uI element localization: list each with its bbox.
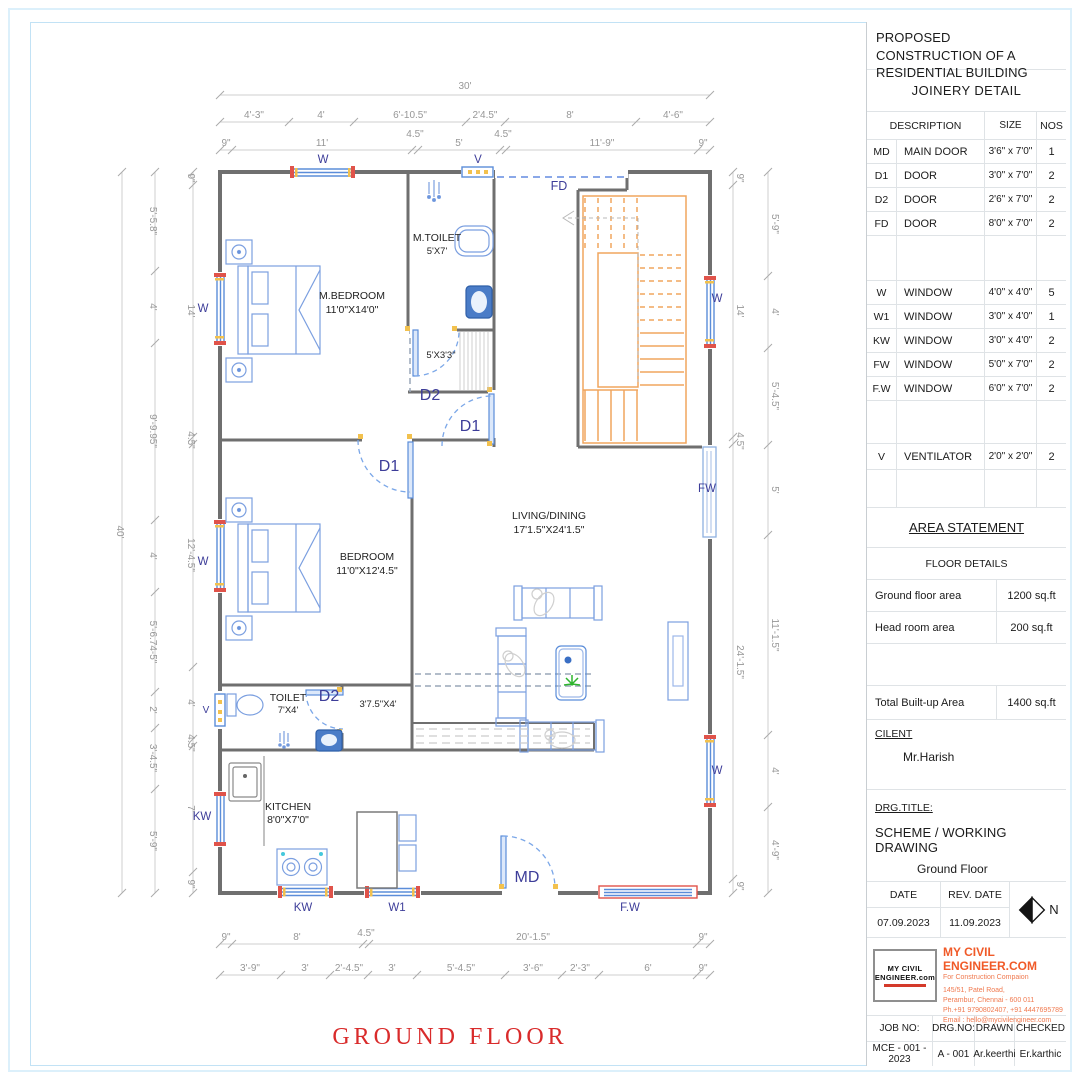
area-spacer [867,644,1066,686]
master-bed [226,240,320,382]
company-info: MY CIVIL ENGINEER.COM For Construction C… [943,938,1066,1027]
door-tag: FD [551,179,568,193]
joinery-cell-size: 2'0" x 2'0" [985,444,1037,469]
dim-label: 8' [566,110,574,121]
area-label: Ground floor area [867,580,997,611]
area-value: 1200 sq.ft [997,590,1066,602]
joinery-cell-size: 3'6" x 7'0" [985,140,1037,163]
job-no-value: MCE - 001 - 2023 [867,1042,933,1066]
window-tag: FW [698,483,716,495]
joinery-cell-tag: MD [867,140,897,163]
drawing-title-section: DRG.TITLE: SCHEME / WORKING DRAWING Grou… [867,790,1066,882]
dim-label: 9" [698,138,708,149]
dim-label: 5'-6.74-5" [147,621,158,664]
window-tag: W [318,154,329,166]
dim-label: 9" [221,932,231,943]
joinery-cell-tag: W [867,281,897,304]
window-tag: W [198,556,209,568]
dim-label: 8' [293,932,301,943]
joinery-cell-nos: 2 [1037,444,1066,469]
logo-text: MY CIVIL [888,964,923,973]
joinery-cell-nos: 2 [1037,353,1066,376]
dim-label: 6' [644,963,652,974]
joinery-cell-desc: WINDOW [897,377,985,400]
dim-label: 3' [301,963,309,974]
date-section: DATE REV. DATE 07.09.2023 11.09.2023 N [867,882,1066,938]
joinery-cell-tag: D1 [867,164,897,187]
dim-label: 5'-5.8" [147,207,158,236]
joinery-cell-tag: FW [867,353,897,376]
date-header: DATE [867,882,941,908]
address-line: Ph.+91 9790802407, +91 4447695789 [943,1006,1066,1016]
drg-subtitle: Ground Floor [917,862,1058,876]
joinery-cell-desc: MAIN DOOR [897,140,985,163]
date-value: 07.09.2023 [867,908,941,938]
walls [220,172,710,893]
joinery-cell-tag: FD [867,212,897,235]
dim-label: 30' [458,81,471,92]
door-hinge-marks [337,326,558,889]
dim-label: 4.5" [357,928,375,939]
dim-label: 4' [147,552,158,560]
drawn-value: Ar.keerthi [975,1042,1015,1066]
joinery-cell-nos: 2 [1037,188,1066,211]
tv-console [668,622,688,700]
company-logo: MY CIVIL ENGINEER.com [873,949,937,1002]
dim-label: 9" [185,879,196,889]
joinery-cell-desc: WINDOW [897,305,985,328]
room-label: LIVING/DINING [512,510,586,522]
joinery-header-row: DESCRIPTION SIZE NOS [867,112,1066,140]
dim-label: 9" [734,881,745,891]
drg-title: SCHEME / WORKING DRAWING [875,825,1058,855]
dim-label: 4.5" [185,431,196,449]
dim-label: 4'-9" [769,840,780,860]
dim-label: 4' [147,303,158,311]
client-label: CILENT [875,728,912,740]
area-row: Head room area 200 sq.ft [867,612,1066,644]
joinery-cell-tag: V [867,444,897,469]
window-jambs [214,166,716,898]
joinery-row: FW WINDOW 5'0" x 7'0" 2 [867,353,1066,377]
sofa-set [496,586,604,752]
window-tag: KW [294,902,313,914]
dim-label: 14' [734,304,745,317]
joinery-row: MD MAIN DOOR 3'6" x 7'0" 1 [867,140,1066,164]
room-size: 3'7.5"X4' [359,699,396,710]
dim-label: 4.5" [494,129,512,140]
drg-title-label: DRG.TITLE: [875,802,933,814]
dim-label: 3'-4.5" [147,744,158,773]
dim-label: 9" [185,173,196,183]
room-size: 5'X7' [427,246,448,257]
window-tag: KW [193,811,212,823]
joinery-cell-size: 5'0" x 7'0" [985,353,1037,376]
floor-details-heading: FLOOR DETAILS [867,548,1066,580]
joinery-col-size: SIZE [985,112,1037,139]
dim-label: 40' [114,525,125,538]
dim-label: 9" [698,932,708,943]
joinery-cell-desc: WINDOW [897,281,985,304]
room-label: M.BEDROOM [319,290,385,302]
dim-label: 4.5" [734,432,745,450]
window-tag: F.W [620,902,640,914]
area-total-value: 1400 sq.ft [997,697,1066,709]
north-indicator: N [1009,882,1066,937]
window-tag: V [474,154,482,166]
area-row: Ground floor area 1200 sq.ft [867,580,1066,612]
dim-label: 11'-1.5" [769,618,780,652]
room-size: 11'0"X14'0" [326,304,379,316]
joinery-cell-desc: WINDOW [897,329,985,352]
joinery-cell-nos: 1 [1037,305,1066,328]
job-no-header: JOB NO: [867,1016,933,1041]
joinery-cell-desc: DOOR [897,188,985,211]
dim-label: 2' [147,706,158,714]
dim-label: 20'-1.5" [516,932,550,943]
wardrobe-hatch [460,332,488,390]
windows [214,166,716,898]
dim-label: 4' [769,308,780,316]
stairs [583,196,686,443]
joinery-spacer [867,236,1066,281]
joinery-col-description: DESCRIPTION [867,112,985,139]
room-size: 8'0"X7'0" [267,814,309,826]
client-name: Mr.Harish [903,750,1058,764]
dim-label: 4'-3" [244,110,264,121]
dim-label: 11'-9" [590,138,615,149]
joinery-cell-desc: DOOR [897,212,985,235]
company-address: 145/51, Patel Road, Perambur, Chennai - … [943,986,1066,1027]
dim-label: 24'-1.5" [734,645,745,679]
joinery-row: W WINDOW 4'0" x 4'0" 5 [867,281,1066,305]
dim-label: 4' [317,110,325,121]
understair-hatch [416,729,590,743]
dim-label: 6'-10.5" [393,110,427,121]
room-size: 17'1.5"X24'1.5" [513,524,584,536]
area-statement-heading: AREA STATEMENT [867,508,1066,548]
company-tagline: For Construction Compaion [943,974,1066,981]
joinery-cell-nos: 2 [1037,164,1066,187]
joinery-row: KW WINDOW 3'0" x 4'0" 2 [867,329,1066,353]
joinery-cell-size: 3'0" x 4'0" [985,329,1037,352]
room-label: M.TOILET [413,232,462,244]
joinery-spacer [867,470,1066,508]
company-name: MY CIVIL ENGINEER.COM [943,945,1066,973]
dim-label: 4' [769,767,780,775]
window-tag: W [712,293,723,305]
dim-label: 2'-4.5" [335,963,364,974]
joinery-cell-tag: W1 [867,305,897,328]
door-tag: D2 [319,688,340,705]
dim-label: 4' [185,699,196,707]
joinery-cell-tag: KW [867,329,897,352]
door-tag: D2 [420,387,441,404]
logo-underline [884,984,926,987]
room-label: BEDROOM [340,551,394,563]
room-size: 5'X3'3" [426,350,455,361]
window-tag: W [712,765,723,777]
joinery-row: D2 DOOR 2'6" x 7'0" 2 [867,188,1066,212]
date-table: DATE REV. DATE 07.09.2023 11.09.2023 [867,882,1009,937]
title-block: PROPOSED CONSTRUCTION OF A RESIDENTIAL B… [866,22,1066,1066]
joinery-cell-tag: F.W [867,377,897,400]
joinery-cell-desc: DOOR [897,164,985,187]
joinery-cell-size: 3'0" x 4'0" [985,305,1037,328]
area-value: 200 sq.ft [997,622,1066,634]
stair-direction-guide [563,211,638,382]
joinery-row: F.W WINDOW 6'0" x 7'0" 2 [867,377,1066,401]
joinery-cell-size: 6'0" x 7'0" [985,377,1037,400]
drg-no-value: A - 001 [933,1042,975,1066]
furniture [226,180,688,888]
checked-value: Er.karthic [1015,1042,1066,1066]
wall-openings [213,165,718,900]
joinery-cell-nos: 5 [1037,281,1066,304]
rev-date-header: REV. DATE [941,882,1009,908]
main-door-tag: MD [515,869,540,886]
north-label: N [1049,902,1058,917]
address-line: Perambur, Chennai - 600 011 [943,996,1066,1006]
north-compass-icon [1017,895,1047,925]
person-sketches [501,589,575,748]
bed [226,498,320,640]
joinery-row: D1 DOOR 3'0" x 7'0" 2 [867,164,1066,188]
dim-label: 9" [221,138,231,149]
client-section: CILENT Mr.Harish [867,720,1066,790]
floor-plan-drawing: 30' 4'-3" 4' 6'-10.5" 2'4.5" 8' 4'-6" 9"… [0,0,870,1080]
dim-label: 9" [698,963,708,974]
room-size: 11'0"X12'4.5" [336,565,398,577]
dim-label: 5'-4.5" [447,963,476,974]
dim-label: 11' [316,138,328,149]
job-value-row: MCE - 001 - 2023 A - 001 Ar.keerthi Er.k… [867,1042,1066,1066]
address-line: Email : hello@mycivilengineer.com [943,1016,1066,1026]
joinery-cell-nos: 1 [1037,140,1066,163]
joinery-cell-nos: 2 [1037,377,1066,400]
dim-label: 3'-6" [523,963,543,974]
window-sill-marks [215,168,714,897]
door-tag: D1 [460,418,481,435]
room-label: TOILET [270,692,307,704]
joinery-cell-size: 2'6" x 7'0" [985,188,1037,211]
joinery-cell-size: 4'0" x 4'0" [985,281,1037,304]
room-size: 7'X4' [278,705,299,716]
joinery-row: W1 WINDOW 3'0" x 4'0" 1 [867,305,1066,329]
joinery-col-nos: NOS [1037,112,1066,139]
window-tag: W1 [388,902,405,914]
joinery-cell-nos: 2 [1037,329,1066,352]
dim-label: 5'-9" [769,214,780,234]
project-title: PROPOSED CONSTRUCTION OF A RESIDENTIAL B… [867,22,1066,70]
area-total-row: Total Built-up Area 1400 sq.ft [867,686,1066,720]
dim-label: 5'-9" [147,831,158,851]
dim-label: 14' [185,304,196,317]
dim-label: 2'-3" [570,963,590,974]
joinery-cell-tag: D2 [867,188,897,211]
dim-label: 12'-4.5" [185,538,196,572]
dim-label: 3'-9" [240,963,260,974]
dim-label: 3' [388,963,396,974]
window-tag: V [203,705,210,716]
joinery-cell-desc: VENTILATOR [897,444,985,469]
dim-label: 4.5" [185,734,196,752]
area-label: Head room area [867,612,997,643]
joinery-cell-size: 8'0" x 7'0" [985,212,1037,235]
kitchen-fixtures [229,756,416,888]
dim-label: 5' [455,138,463,149]
joinery-cell-nos: 2 [1037,212,1066,235]
dim-label: 2'4.5" [473,110,498,121]
door-tag: D1 [379,458,400,475]
rev-date-value: 11.09.2023 [941,908,1009,938]
logo-text: ENGINEER.com [875,973,935,982]
joinery-row: V VENTILATOR 2'0" x 2'0" 2 [867,444,1066,470]
drawing-title: GROUND FLOOR [260,1024,640,1051]
joinery-cell-desc: WINDOW [897,353,985,376]
dim-label: 9" [734,173,745,183]
window-tag: W [198,303,209,315]
joinery-spacer [867,401,1066,444]
area-total-label: Total Built-up Area [867,686,997,719]
dim-label: 4.5" [406,129,424,140]
dim-label: 9'-9.95" [147,414,158,448]
company-section: MY CIVIL ENGINEER.com MY CIVIL ENGINEER.… [867,938,1066,1016]
joinery-cell-size: 3'0" x 7'0" [985,164,1037,187]
coffee-table [556,646,586,700]
dim-label: 4'-6" [663,110,683,121]
dim-label: 5' [769,486,780,494]
room-label: KITCHEN [265,801,311,813]
joinery-row: FD DOOR 8'0" x 7'0" 2 [867,212,1066,236]
drawing-sheet: 30' 4'-3" 4' 6'-10.5" 2'4.5" 8' 4'-6" 9"… [0,0,1080,1080]
address-line: 145/51, Patel Road, [943,986,1066,996]
dim-label: 5'-4.5" [769,382,780,411]
